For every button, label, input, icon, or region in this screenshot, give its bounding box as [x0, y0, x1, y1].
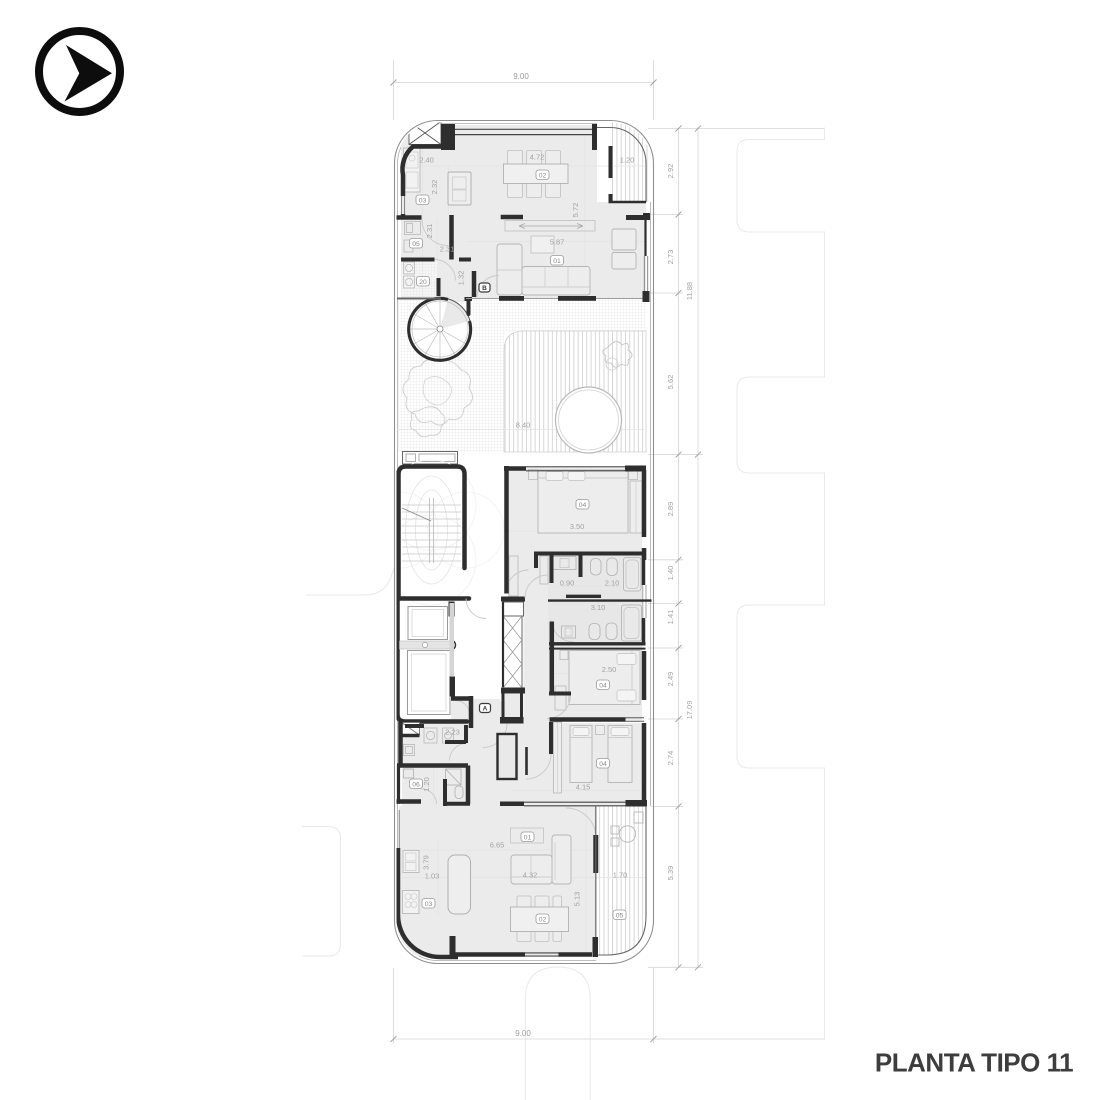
svg-text:01: 01	[524, 834, 532, 841]
svg-text:2.31: 2.31	[440, 245, 455, 254]
svg-text:02: 02	[539, 916, 547, 923]
svg-text:9.00: 9.00	[515, 1029, 531, 1038]
svg-text:04: 04	[599, 761, 607, 768]
svg-text:06: 06	[412, 781, 420, 788]
svg-text:04: 04	[579, 502, 587, 509]
svg-text:03: 03	[425, 901, 433, 908]
svg-text:6.65: 6.65	[490, 841, 505, 850]
svg-text:4.32: 4.32	[523, 871, 538, 880]
svg-text:2.74: 2.74	[666, 751, 675, 766]
svg-text:A: A	[483, 706, 488, 713]
svg-text:2.50: 2.50	[602, 665, 617, 674]
svg-text:4.15: 4.15	[576, 783, 591, 792]
svg-text:3.79: 3.79	[422, 855, 431, 870]
svg-text:1.20: 1.20	[422, 777, 431, 792]
svg-text:2.40: 2.40	[419, 156, 434, 165]
svg-text:11.88: 11.88	[685, 282, 694, 300]
svg-text:9.00: 9.00	[513, 72, 529, 81]
svg-text:1.40: 1.40	[666, 566, 675, 581]
svg-text:4.72: 4.72	[530, 153, 545, 162]
svg-text:2.31: 2.31	[425, 224, 434, 239]
svg-text:1.20: 1.20	[620, 156, 635, 165]
svg-text:5.13: 5.13	[573, 892, 582, 907]
svg-text:02: 02	[539, 172, 547, 179]
svg-text:5.39: 5.39	[666, 866, 675, 881]
svg-text:20: 20	[419, 279, 427, 286]
svg-text:2.49: 2.49	[666, 672, 675, 687]
svg-text:5.87: 5.87	[550, 238, 565, 247]
svg-text:05: 05	[616, 912, 624, 919]
svg-text:PLANTA TIPO 11: PLANTA TIPO 11	[875, 1048, 1073, 1078]
svg-text:2.32: 2.32	[430, 180, 439, 195]
svg-text:1.70: 1.70	[613, 871, 628, 880]
svg-text:2.73: 2.73	[666, 250, 675, 265]
svg-text:0.90: 0.90	[560, 579, 575, 588]
svg-text:2.92: 2.92	[666, 164, 675, 179]
svg-text:04: 04	[599, 682, 607, 689]
svg-text:01: 01	[553, 258, 561, 265]
svg-text:3.10: 3.10	[591, 603, 606, 612]
svg-text:1.41: 1.41	[666, 610, 675, 625]
svg-text:03: 03	[419, 197, 427, 204]
svg-text:05: 05	[412, 241, 420, 248]
svg-text:B: B	[482, 285, 487, 292]
svg-text:3.50: 3.50	[570, 522, 585, 531]
svg-text:1.03: 1.03	[425, 872, 440, 881]
svg-text:2.89: 2.89	[666, 502, 675, 517]
svg-text:5.62: 5.62	[666, 375, 675, 390]
svg-text:5.72: 5.72	[571, 203, 580, 218]
svg-text:2.10: 2.10	[605, 579, 620, 588]
svg-text:1.32: 1.32	[457, 271, 466, 286]
svg-text:17.09: 17.09	[685, 701, 694, 720]
svg-text:2.23: 2.23	[445, 728, 460, 737]
svg-text:8.40: 8.40	[516, 421, 531, 430]
